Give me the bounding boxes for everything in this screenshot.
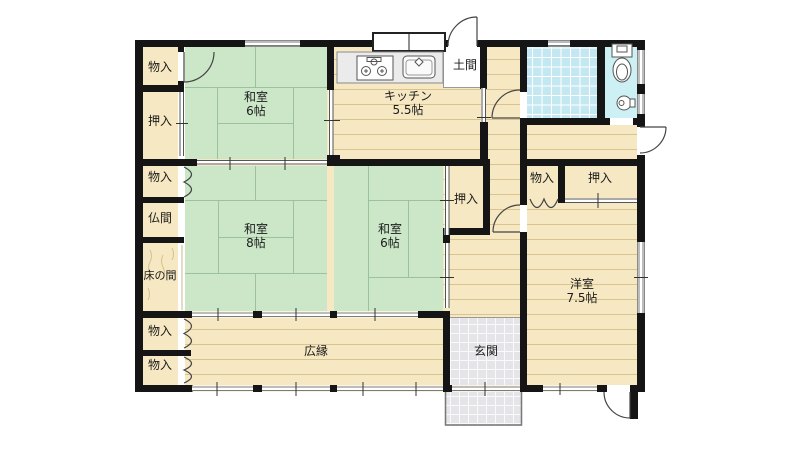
label-closet-center: 押入	[450, 192, 482, 206]
label-storage-mid-left: 物入	[141, 170, 179, 184]
label-butsuma: 仏間	[141, 211, 179, 225]
label-storage-bottom-1: 物入	[141, 324, 179, 338]
label-storage-west: 物入	[526, 171, 558, 185]
label-storage-bottom-2: 物入	[141, 358, 179, 372]
label-closet-west: 押入	[584, 171, 616, 185]
label-washitsu-6-center: 和室 6帖	[355, 222, 425, 250]
label-storage-top-left: 物入	[141, 60, 179, 74]
porch	[445, 392, 522, 426]
label-genkan: 玄関	[470, 344, 502, 358]
southeast-door	[604, 392, 630, 418]
label-washitsu-8: 和室 8帖	[221, 222, 291, 250]
label-tokonoma: 床の間	[137, 270, 183, 283]
label-washitsu-top: 和室 6帖	[221, 90, 291, 118]
label-doma: 土間	[450, 58, 480, 72]
label-closet-left: 押入	[141, 114, 179, 128]
label-kitchen: キッチン 5.5帖	[377, 89, 439, 117]
kitchen-counter	[337, 52, 443, 83]
label-yoshitsu: 洋室 7.5帖	[547, 277, 617, 305]
sink-icon	[403, 56, 435, 78]
bathroom-floor	[527, 47, 597, 118]
kitchen-bay-window	[373, 33, 445, 51]
label-hiroen: 広縁	[300, 344, 332, 358]
floor-plan: 物入 押入 和室 6帖 キッチン 5.5帖 土間 物入 仏間 床の間 和室 8帖…	[0, 0, 800, 450]
stove-icon	[357, 56, 393, 80]
toilet-icon	[612, 44, 632, 82]
